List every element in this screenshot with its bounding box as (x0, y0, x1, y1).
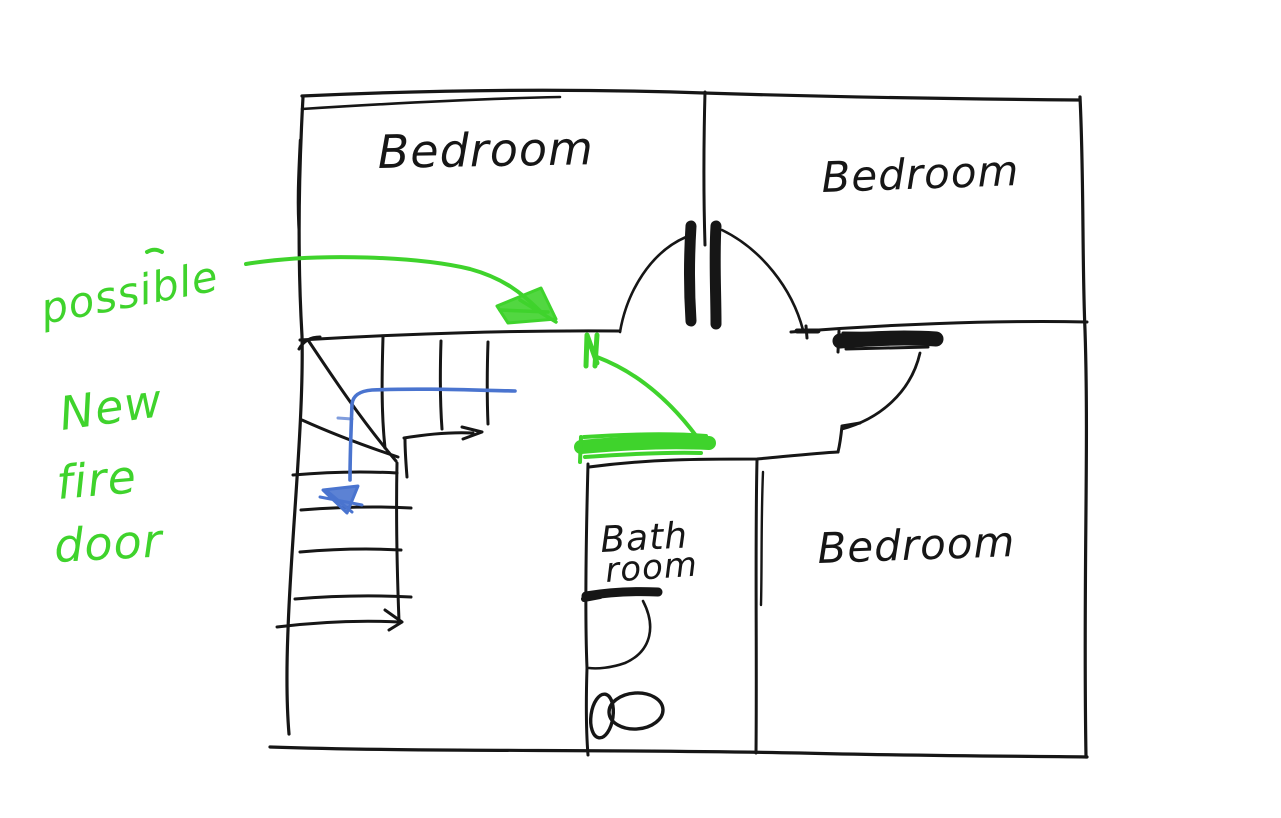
step-3 (300, 549, 401, 552)
left-wall (287, 97, 303, 734)
room-label-bedroom-bottom-right: Bedroom (817, 517, 1016, 573)
note-line-door: door (53, 513, 166, 573)
tread-vertical-3 (487, 342, 488, 424)
green-arrow-start-dash (147, 250, 162, 252)
tread-edge (404, 433, 473, 438)
room-label-bathroom-line2: room (604, 545, 699, 591)
tread-riser (405, 439, 407, 477)
toilet (588, 691, 664, 739)
divider-wall-retrace (761, 472, 763, 605)
fire-door-note-text: possible New fire door (36, 251, 223, 573)
note-line-fire: fire (54, 449, 139, 510)
bathroom-left-wall (586, 464, 588, 755)
floor-plan-drawing: Bedroom Bedroom Bedroom Bath room possib… (0, 0, 1281, 818)
flight-right-edge (397, 463, 399, 621)
door-leaf-bathroom-heel (584, 596, 600, 599)
door-swing-arc-bedroom-tr (722, 230, 803, 330)
bottom-wall (270, 747, 1087, 757)
door-leaf-bedroom-tr (715, 226, 716, 324)
floor-plan-sketch: Bedroom Bedroom Bedroom Bath room possib… (0, 0, 1281, 818)
room-label-bedroom-top-right: Bedroom (821, 146, 1020, 202)
tread-vertical-2 (440, 341, 442, 429)
step-4 (295, 596, 411, 599)
door-swing-arc-bedroom-br (842, 353, 920, 429)
center-wall-top-bedrooms (704, 92, 705, 245)
staircase (277, 337, 488, 630)
door-swing-arc-bathroom (589, 601, 650, 668)
landing-top-wall (300, 331, 620, 340)
door-leaf-bedroom-tl (690, 226, 692, 321)
step-5 (277, 621, 399, 627)
door-swing-arc-bedroom-tl (620, 237, 686, 332)
top-wall-retrace (302, 97, 560, 109)
mid-wall-right (791, 322, 1087, 332)
room-label-bedroom-top-left: Bedroom (377, 121, 594, 179)
toilet-cistern (588, 693, 616, 740)
stairs-down-arrow (320, 389, 515, 513)
green-door-hinge-mark (586, 335, 597, 366)
door-leaf-bedroom-br (840, 338, 936, 341)
note-line-possible: possible (36, 251, 223, 334)
room-labels: Bedroom Bedroom Bedroom Bath room (377, 121, 1020, 591)
step-1 (293, 472, 397, 475)
step-2 (301, 507, 411, 510)
top-wall (302, 90, 1079, 100)
right-wall (1080, 97, 1086, 757)
toilet-bowl (608, 691, 664, 731)
tread-vertical-1 (382, 337, 385, 448)
green-door-swing-arc (597, 357, 697, 437)
green-fire-door-bar (581, 442, 709, 447)
note-line-new: New (56, 373, 166, 441)
blue-stray-dash (338, 418, 352, 419)
bath-bedroom-divider-wall (756, 460, 757, 753)
green-arrow-shaft (246, 257, 540, 311)
